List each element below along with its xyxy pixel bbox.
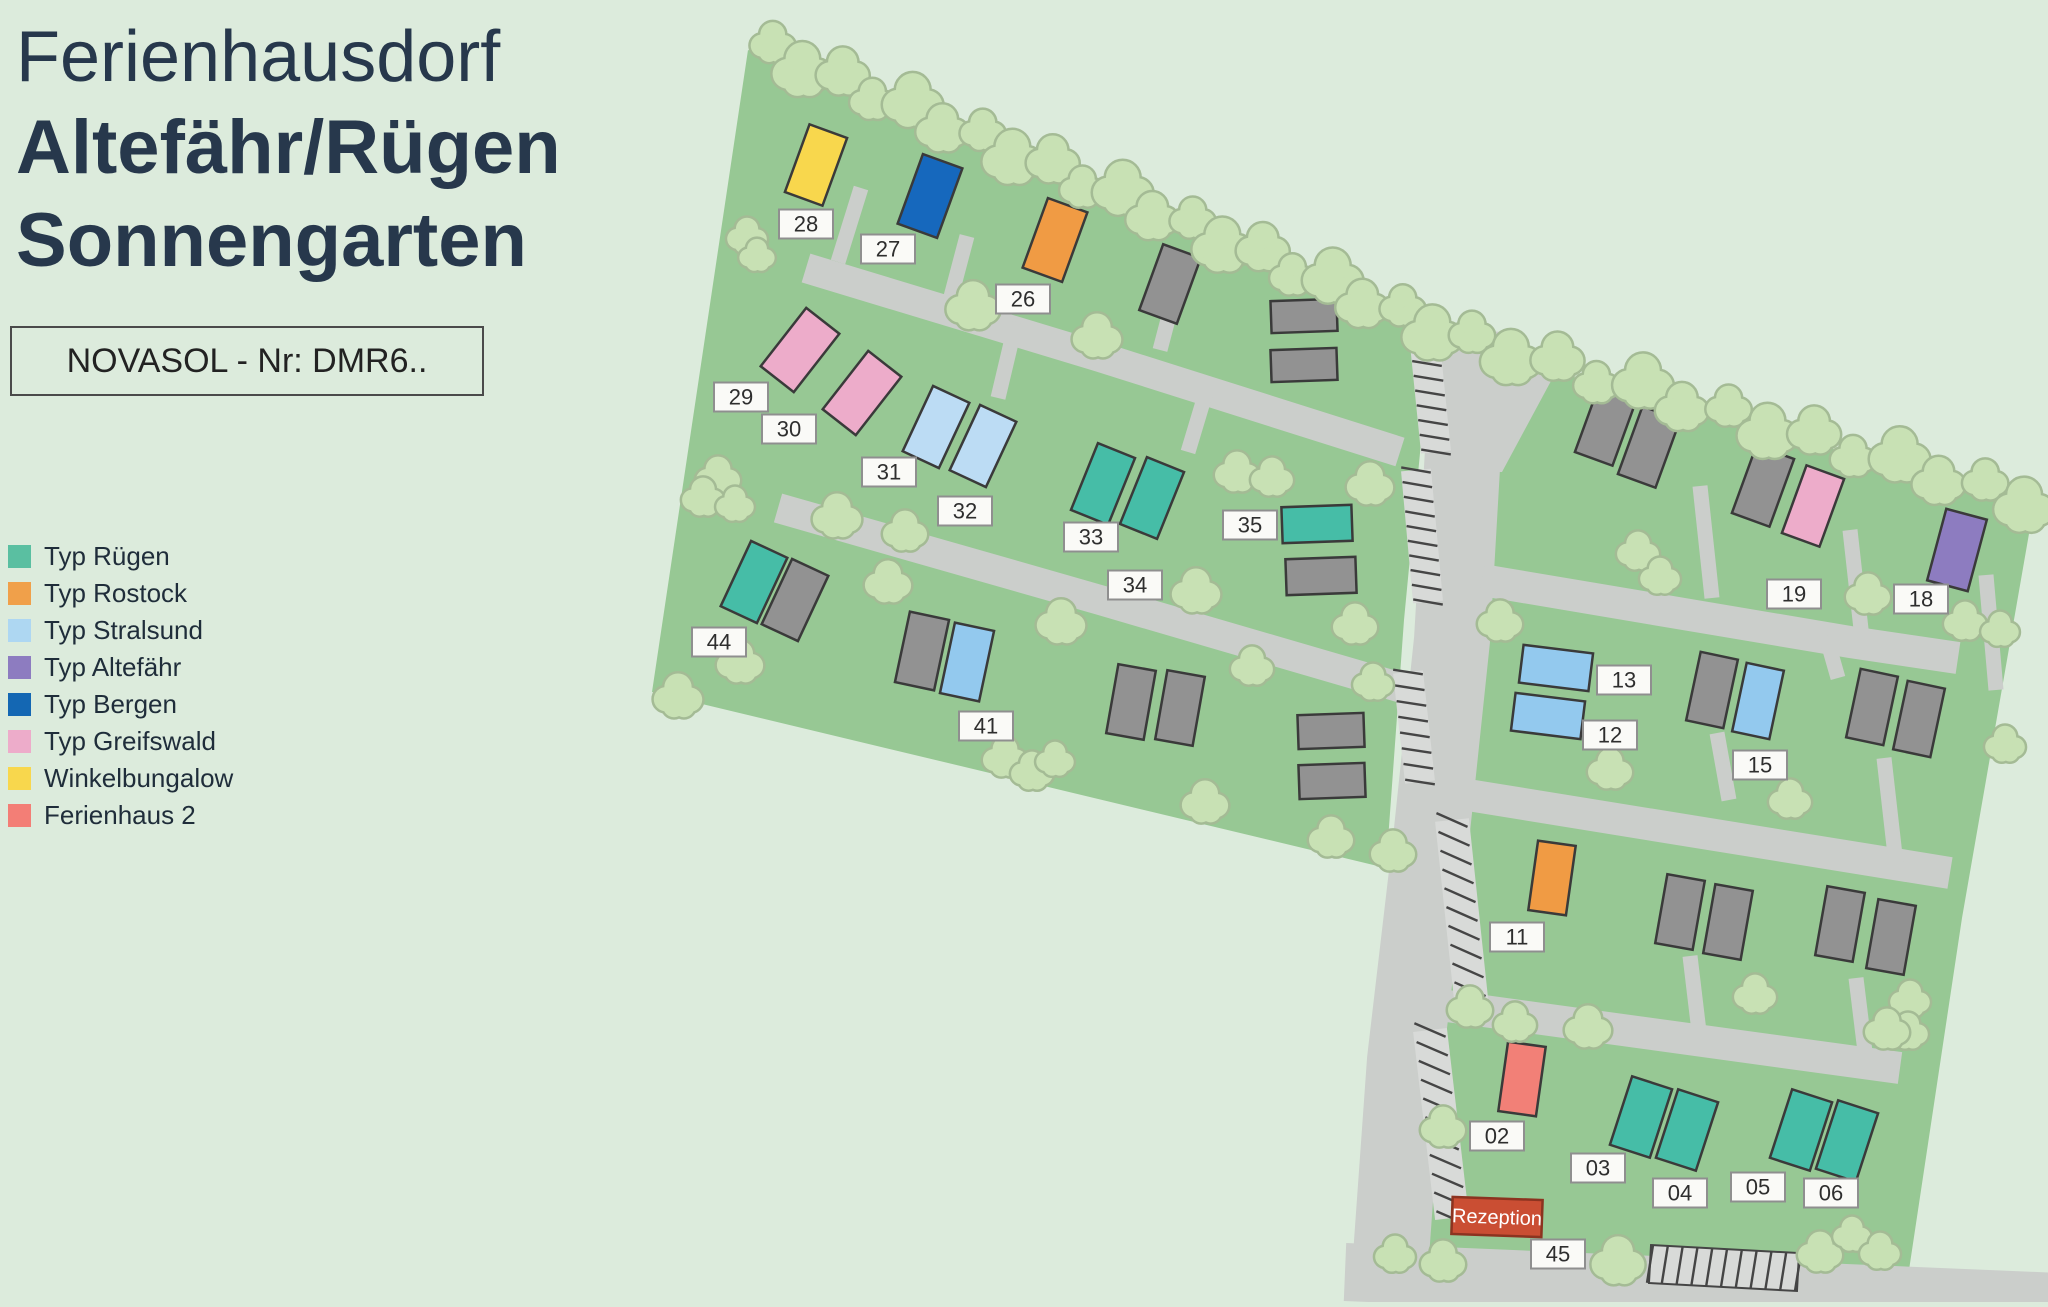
- legend-swatch-greifswald: [8, 730, 31, 753]
- label-text: 44: [707, 629, 731, 654]
- legend: Typ RügenTyp RostockTyp StralsundTyp Alt…: [8, 538, 233, 834]
- house-rect: [1270, 348, 1337, 382]
- label-text: 33: [1079, 524, 1103, 549]
- label-text: 05: [1746, 1174, 1770, 1199]
- title-line-3: Sonnengarten: [16, 195, 561, 288]
- legend-swatch-bergen: [8, 693, 31, 716]
- label-text: 26: [1011, 286, 1035, 311]
- driveway: [1690, 956, 1700, 1040]
- label-text: 45: [1546, 1241, 1570, 1266]
- label-text: 18: [1909, 586, 1933, 611]
- driveway: [1856, 978, 1866, 1060]
- label-text: 32: [953, 498, 977, 523]
- boundary-tree: [1963, 460, 2007, 500]
- legend-label: Typ Altefähr: [44, 652, 181, 683]
- house-rect: [1297, 713, 1364, 749]
- label-text: 28: [794, 211, 818, 236]
- legend-item-bergen: Typ Bergen: [8, 686, 233, 723]
- legend-item-rostock: Typ Rostock: [8, 575, 233, 612]
- legend-item-altefaehr: Typ Altefähr: [8, 649, 233, 686]
- house-rect: [1528, 841, 1575, 916]
- label-45: 45: [1531, 1240, 1585, 1269]
- label-32: 32: [938, 497, 992, 526]
- house-unnumbered: [1297, 713, 1364, 749]
- house-rect: [1519, 645, 1593, 691]
- legend-label: Typ Bergen: [44, 689, 177, 720]
- label-13: 13: [1597, 666, 1651, 695]
- label-19: 19: [1767, 580, 1821, 609]
- label-text: 11: [1506, 924, 1529, 949]
- label-text: 15: [1748, 752, 1772, 777]
- legend-swatch-winkel: [8, 767, 31, 790]
- label-text: 34: [1123, 572, 1147, 597]
- label-text: 30: [777, 416, 801, 441]
- legend-swatch-ruegen: [8, 545, 31, 568]
- house-rect: [1281, 505, 1352, 543]
- label-text: 19: [1782, 581, 1806, 606]
- label-text: 27: [876, 236, 900, 261]
- legend-label: Winkelbungalow: [44, 763, 233, 794]
- label-33: 33: [1064, 523, 1118, 552]
- label-text: 13: [1612, 667, 1636, 692]
- legend-swatch-ferienhaus2: [8, 804, 31, 827]
- house-13: [1519, 645, 1593, 691]
- label-12: 12: [1583, 721, 1637, 750]
- reception-marker: Rezeption: [1451, 1197, 1542, 1237]
- legend-item-winkel: Winkelbungalow: [8, 760, 233, 797]
- page-title: Ferienhausdorf Altefähr/Rügen Sonnengart…: [16, 14, 561, 287]
- house-rect: [1498, 1042, 1545, 1117]
- house-rect: [1511, 693, 1585, 739]
- label-06: 06: [1804, 1179, 1858, 1208]
- legend-label: Typ Greifswald: [44, 726, 216, 757]
- label-44: 44: [692, 628, 746, 657]
- parking-area: [1647, 1245, 1801, 1291]
- house-rect: [1298, 763, 1365, 799]
- label-31: 31: [862, 458, 916, 487]
- house-02: [1498, 1042, 1545, 1117]
- label-02: 02: [1470, 1122, 1524, 1151]
- reference-number-text: NOVASOL - Nr: DMR6..: [67, 342, 428, 381]
- house-unnumbered: [1298, 763, 1365, 799]
- boundary-tree: [1450, 312, 1494, 352]
- legend-swatch-rostock: [8, 582, 31, 605]
- label-text: 41: [974, 713, 998, 738]
- label-26: 26: [996, 285, 1050, 314]
- house-35: [1281, 505, 1352, 543]
- title-line-2: Altefähr/Rügen: [16, 102, 561, 195]
- label-text: 06: [1819, 1180, 1843, 1205]
- reference-number-box: NOVASOL - Nr: DMR6..: [10, 326, 484, 396]
- house-12: [1511, 693, 1585, 739]
- label-text: 29: [729, 384, 753, 409]
- label-28: 28: [779, 210, 833, 239]
- boundary-tree: [1532, 333, 1584, 380]
- boundary-tree: [1788, 407, 1840, 454]
- label-29: 29: [714, 383, 768, 412]
- legend-item-greifswald: Typ Greifswald: [8, 723, 233, 760]
- legend-swatch-stralsund: [8, 619, 31, 642]
- house-11: [1528, 841, 1575, 916]
- house-unnumbered: [1270, 348, 1337, 382]
- label-text: 35: [1238, 512, 1262, 537]
- label-05: 05: [1731, 1173, 1785, 1202]
- label-04: 04: [1653, 1179, 1707, 1208]
- label-text: 02: [1485, 1123, 1509, 1148]
- legend-label: Typ Stralsund: [44, 615, 203, 646]
- label-27: 27: [861, 235, 915, 264]
- reception-text: Rezeption: [1452, 1205, 1543, 1230]
- label-text: 12: [1598, 722, 1622, 747]
- legend-label: Ferienhaus 2: [44, 800, 196, 831]
- label-35: 35: [1223, 511, 1277, 540]
- house-rect: [1285, 557, 1356, 595]
- legend-swatch-altefaehr: [8, 656, 31, 679]
- label-text: 04: [1668, 1180, 1692, 1205]
- label-text: 03: [1586, 1155, 1610, 1180]
- legend-item-ferienhaus2: Ferienhaus 2: [8, 797, 233, 834]
- label-15: 15: [1733, 751, 1787, 780]
- legend-label: Typ Rügen: [44, 541, 170, 572]
- house-unnumbered: [1285, 557, 1356, 595]
- label-text: 31: [877, 459, 901, 484]
- legend-item-ruegen: Typ Rügen: [8, 538, 233, 575]
- label-03: 03: [1571, 1154, 1625, 1183]
- legend-label: Typ Rostock: [44, 578, 187, 609]
- label-18: 18: [1894, 585, 1948, 614]
- boundary-tree: [1707, 386, 1751, 426]
- label-41: 41: [959, 712, 1013, 741]
- title-line-1: Ferienhausdorf: [16, 14, 561, 102]
- legend-item-stralsund: Typ Stralsund: [8, 612, 233, 649]
- label-11: 11: [1490, 923, 1544, 952]
- label-30: 30: [762, 415, 816, 444]
- label-34: 34: [1108, 571, 1162, 600]
